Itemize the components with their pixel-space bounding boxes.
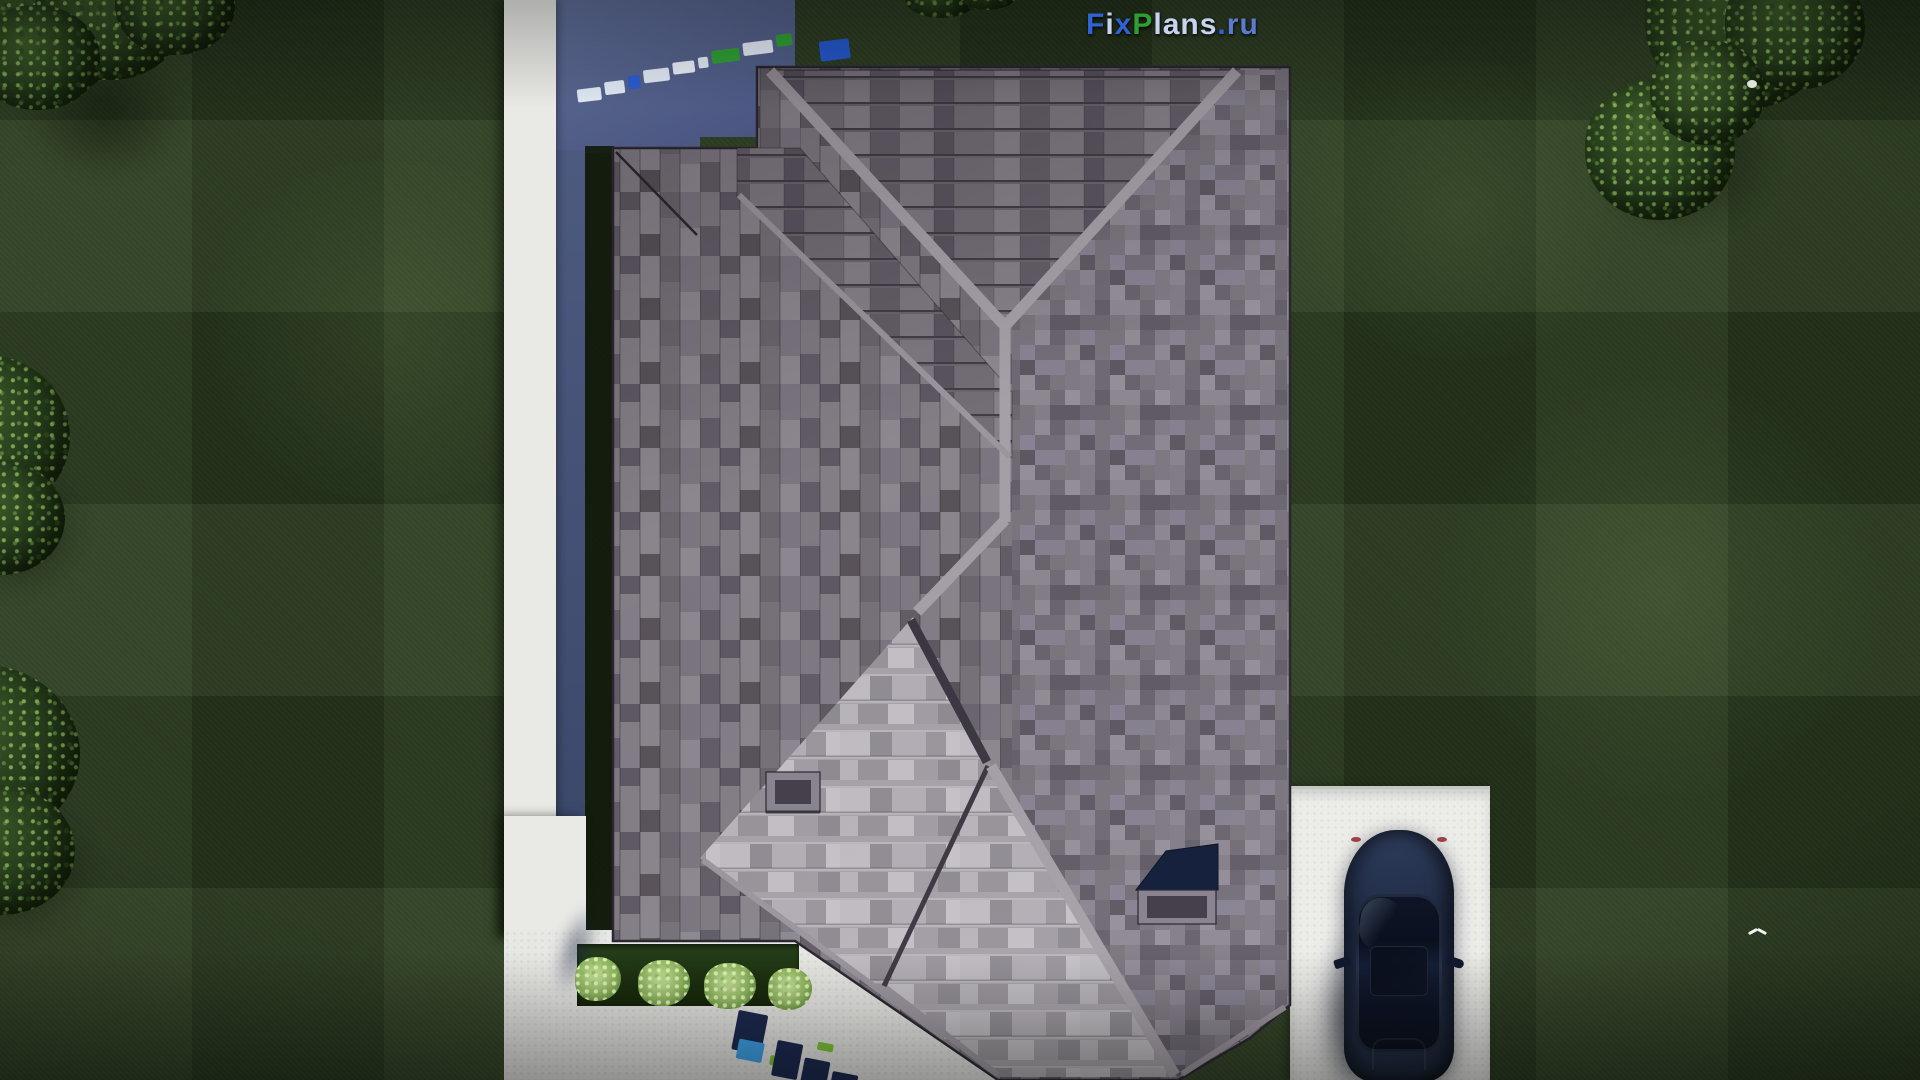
chimney — [1138, 890, 1216, 924]
tree — [1650, 40, 1765, 145]
scene-canvas: FixPlans.ru — [0, 0, 1920, 1080]
logo-letter: F — [1086, 8, 1105, 41]
logo-letter: x — [1115, 8, 1133, 41]
logo-letter: a — [1163, 8, 1181, 41]
chimney — [766, 772, 820, 814]
bird — [1748, 926, 1768, 936]
roof-lighting — [613, 67, 1290, 1080]
logo-letter: l — [1153, 8, 1162, 41]
logo-letter: s — [1200, 8, 1218, 41]
logo-letter: u — [1239, 8, 1258, 41]
logo-letter: r — [1227, 8, 1240, 41]
brand-logo: FixPlans.ru — [1086, 8, 1259, 42]
logo-letter: P — [1132, 8, 1153, 41]
logo-letter: i — [1105, 8, 1114, 41]
bird — [1747, 80, 1757, 88]
logo-letter: n — [1180, 8, 1199, 41]
logo-letter: . — [1217, 8, 1226, 41]
